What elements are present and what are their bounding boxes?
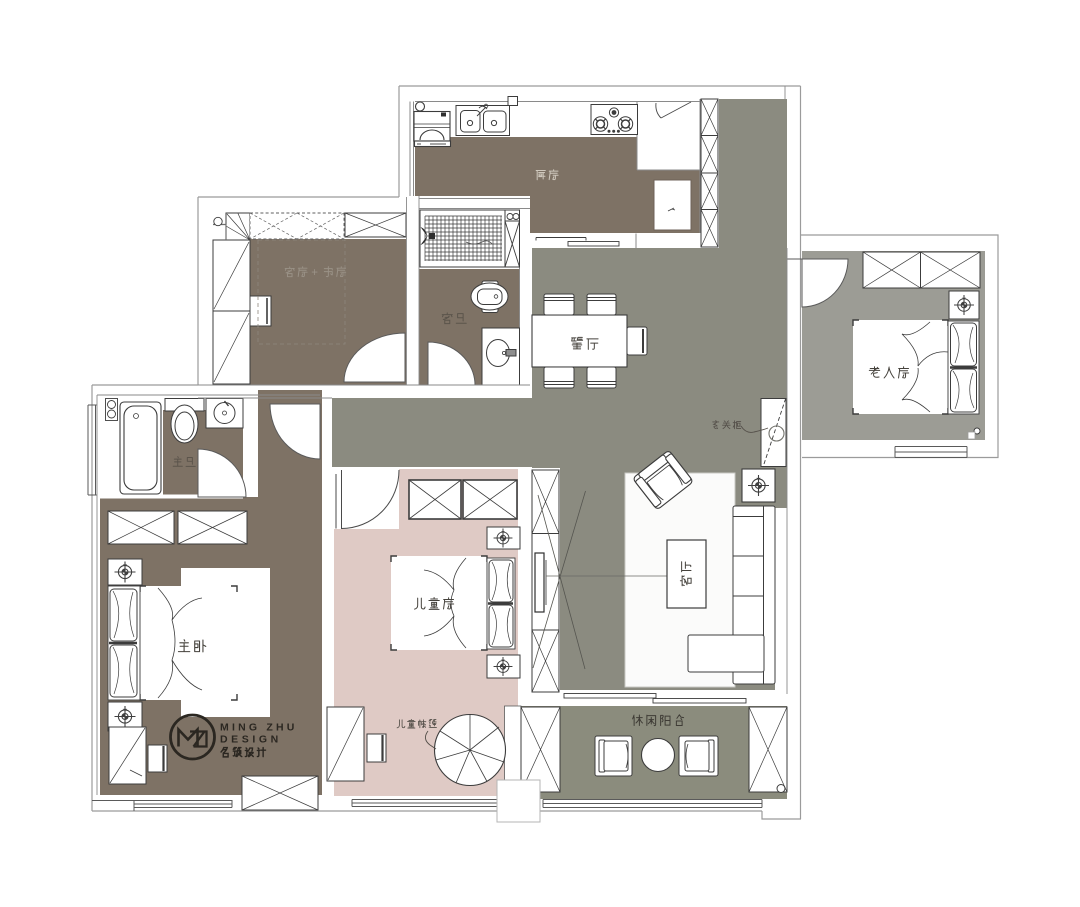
svg-text:+: + xyxy=(311,267,318,279)
svg-text:MING ZHU: MING ZHU xyxy=(220,722,298,734)
svg-text:DESIGN: DESIGN xyxy=(220,734,282,746)
